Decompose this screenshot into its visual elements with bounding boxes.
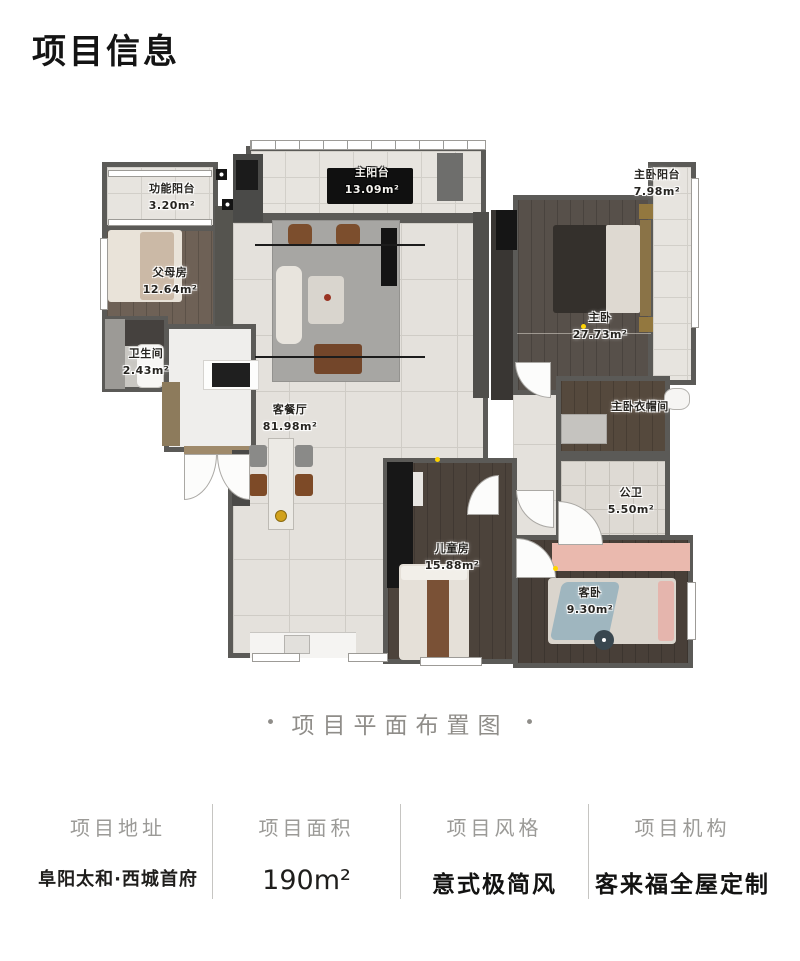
closet-dresser bbox=[561, 414, 607, 444]
info-value: 阜阳太和·西城首府 bbox=[24, 865, 212, 891]
plan-caption: • 项目平面布置图 • bbox=[0, 706, 800, 740]
light-dot-3 bbox=[553, 566, 558, 571]
ottoman bbox=[314, 344, 362, 374]
laundry-sink bbox=[284, 635, 310, 654]
info-col-address: 项目地址 阜阳太和·西城首府 bbox=[24, 804, 212, 899]
room-name: 客卧 bbox=[579, 586, 602, 599]
room-name: 主阳台 bbox=[355, 166, 390, 179]
label-main-balcony: 主阳台 13.09m² bbox=[327, 164, 417, 198]
cooktop bbox=[212, 363, 250, 387]
room-name: 主卧阳台 bbox=[634, 168, 680, 181]
label-master-bedroom: 主卧 27.73m² bbox=[555, 309, 645, 343]
room-area: 5.50m² bbox=[608, 503, 654, 516]
window-master-balcony bbox=[691, 178, 699, 328]
room-name: 主卧 bbox=[589, 311, 612, 324]
info-label: 项目机构 bbox=[589, 812, 776, 841]
caption-dot-left: • bbox=[265, 713, 275, 733]
room-area: 15.88m² bbox=[425, 559, 480, 572]
pendant-lamp bbox=[275, 510, 287, 522]
column-marker-1 bbox=[216, 169, 227, 180]
kids-desk bbox=[413, 472, 423, 506]
room-area: 27.73m² bbox=[573, 328, 628, 341]
master-mattress bbox=[606, 225, 640, 313]
guest-bench bbox=[552, 543, 690, 571]
armchair-left bbox=[288, 224, 312, 246]
chaise-sofa bbox=[276, 266, 302, 344]
label-kids-room: 儿童房 15.88m² bbox=[407, 540, 497, 574]
room-area: 81.98m² bbox=[263, 420, 318, 433]
info-col-agency: 项目机构 客来福全屋定制 bbox=[588, 804, 776, 899]
window-kids-bottom bbox=[420, 657, 482, 666]
light-dot-2 bbox=[435, 457, 440, 462]
master-headboard bbox=[640, 220, 651, 316]
floor-plan: 功能阳台 3.20m² 父母房 12.64m² 卫生间 2.43m² 主阳台 1… bbox=[100, 120, 700, 672]
room-name: 主卧衣帽间 bbox=[611, 400, 669, 413]
project-info-row: 项目地址 阜阳太和·西城首府 项目面积 190m² 项目风格 意式极简风 项目机… bbox=[0, 804, 800, 899]
caption-dot-right: • bbox=[525, 713, 535, 733]
wall-parents-living bbox=[215, 206, 233, 326]
page: 项目信息 bbox=[0, 0, 800, 961]
dining-chair-4 bbox=[295, 474, 313, 496]
room-name: 儿童房 bbox=[435, 542, 470, 555]
info-label: 项目风格 bbox=[401, 812, 588, 841]
kitchen-tall-cabinet bbox=[162, 382, 180, 446]
window-guest-right bbox=[687, 582, 696, 640]
info-value: 意式极简风 bbox=[401, 865, 588, 899]
ceiling-beam-2 bbox=[255, 356, 425, 358]
window-func-balcony-bottom bbox=[108, 219, 212, 226]
label-master-balcony: 主卧阳台 7.98m² bbox=[612, 166, 702, 200]
armchair-right bbox=[336, 224, 360, 246]
dining-chair-1 bbox=[249, 445, 267, 467]
balcony-right-cabinet bbox=[437, 153, 463, 201]
room-name: 功能阳台 bbox=[149, 182, 195, 195]
foyer-cabinet-dark bbox=[236, 160, 258, 190]
nightstand-top bbox=[639, 204, 653, 219]
room-area: 3.20m² bbox=[149, 199, 195, 212]
column-marker-2 bbox=[222, 199, 233, 210]
info-label: 项目地址 bbox=[24, 812, 212, 841]
label-master-closet: 主卧衣帽间 bbox=[595, 398, 685, 415]
label-guest-bedroom: 客卧 9.30m² bbox=[545, 584, 635, 618]
wall-living-corridor bbox=[473, 212, 489, 398]
info-col-area: 项目面积 190m² bbox=[212, 804, 400, 899]
room-area: 13.09m² bbox=[345, 183, 400, 196]
room-name: 客餐厅 bbox=[273, 403, 308, 416]
room-area: 7.98m² bbox=[634, 185, 680, 198]
dining-chair-2 bbox=[295, 445, 313, 467]
room-name: 卫生间 bbox=[129, 347, 164, 360]
label-living-dining: 客餐厅 81.98m² bbox=[245, 401, 335, 435]
entry-door-left bbox=[184, 454, 217, 500]
master-duvet bbox=[553, 225, 608, 313]
window-parents bbox=[100, 238, 108, 310]
info-value: 客来福全屋定制 bbox=[589, 865, 776, 899]
info-value: 190m² bbox=[213, 865, 400, 896]
window-func-balcony-top bbox=[108, 170, 212, 177]
coffee-table-deco bbox=[324, 294, 331, 301]
info-col-style: 项目风格 意式极简风 bbox=[400, 804, 588, 899]
room-area: 12.64m² bbox=[143, 283, 198, 296]
window-living-bottom-2 bbox=[348, 653, 388, 662]
entry-door-right bbox=[217, 454, 250, 500]
label-functional-balcony: 功能阳台 3.20m² bbox=[127, 180, 217, 214]
room-name: 父母房 bbox=[153, 266, 188, 279]
page-title: 项目信息 bbox=[32, 24, 180, 73]
ceiling-beam-1 bbox=[255, 244, 425, 246]
room-area: 9.30m² bbox=[567, 603, 613, 616]
guest-bed-pillows bbox=[658, 581, 674, 641]
room-name: 公卫 bbox=[620, 486, 643, 499]
hall-cabinet bbox=[496, 210, 517, 250]
room-area: 2.43m² bbox=[123, 364, 169, 377]
caption-text: 项目平面布置图 bbox=[292, 706, 509, 740]
dining-chair-3 bbox=[249, 474, 267, 496]
info-label: 项目面积 bbox=[213, 812, 400, 841]
guest-fan-hub bbox=[602, 638, 606, 642]
label-public-bathroom: 公卫 5.50m² bbox=[586, 484, 676, 518]
tv-unit bbox=[381, 228, 397, 286]
window-main-balcony bbox=[250, 140, 486, 150]
label-bathroom-1: 卫生间 2.43m² bbox=[101, 345, 191, 379]
label-parents-room: 父母房 12.64m² bbox=[125, 264, 215, 298]
window-living-bottom-1 bbox=[252, 653, 300, 662]
